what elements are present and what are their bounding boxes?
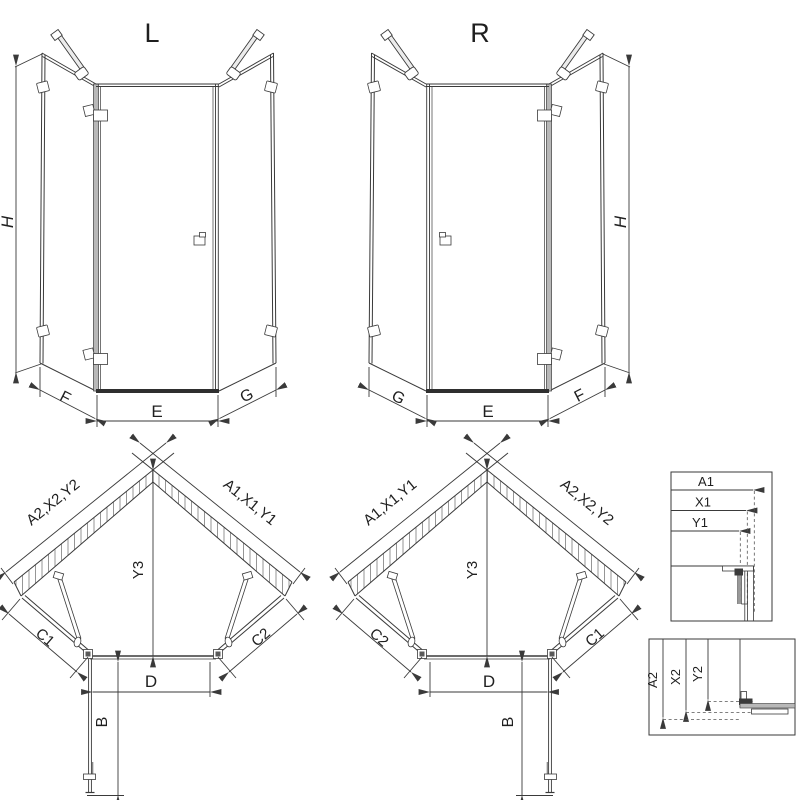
plan-r-depth-label: Y3 (464, 561, 481, 579)
plan-l-opening-label: D (145, 672, 157, 691)
detail-box-top (671, 472, 772, 621)
drawing-page: L H F E G R H G E F A2,X2,Y2 A1,X1,Y1 Y3… (0, 0, 800, 800)
dim-label-height-l: H (0, 215, 17, 228)
detail-y1-label: Y1 (692, 515, 708, 530)
dim-label-e-r: E (482, 402, 493, 421)
detail-x2-label: X2 (668, 669, 683, 685)
detail-y2-label: Y2 (690, 666, 705, 682)
dim-label-e-l: E (151, 402, 162, 421)
variant-title-left: L (144, 18, 159, 48)
plan-l-depth-label: Y3 (130, 561, 147, 579)
shower-enclosure-technical-drawing: L H F E G R H G E F A2,X2,Y2 A1,X1,Y1 Y3… (0, 0, 800, 800)
detail-x1-label: X1 (695, 495, 711, 510)
detail-a2-label: A2 (645, 672, 660, 688)
plan-r-door-label: B (500, 717, 517, 728)
plan-r-opening-label: D (483, 672, 495, 691)
detail-box-bottom (649, 639, 795, 735)
dim-label-height-r: H (611, 215, 630, 228)
plan-l-door-label: B (94, 717, 111, 728)
detail-a1-label: A1 (698, 474, 714, 489)
variant-title-right: R (470, 18, 490, 48)
